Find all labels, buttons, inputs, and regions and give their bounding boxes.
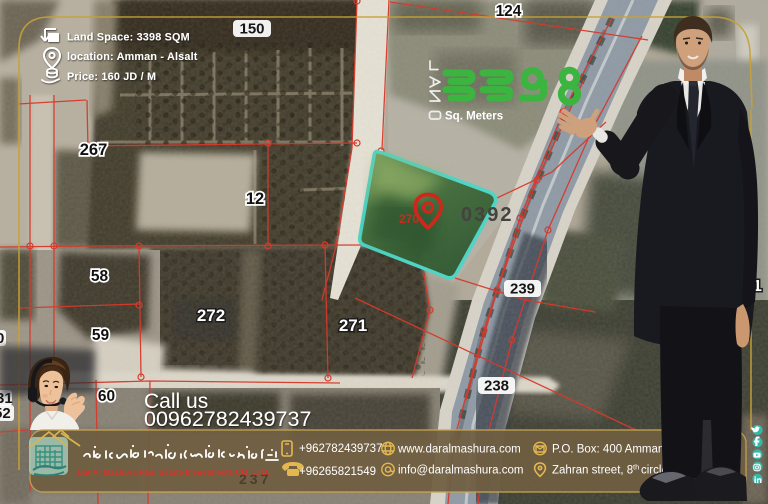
svg-text:location: Amman - Alsalt: location: Amman - Alsalt: [67, 51, 198, 63]
svg-text:Sq. Meters: Sq. Meters: [445, 111, 503, 123]
svg-text:0: 0: [0, 330, 4, 347]
svg-text:272: 272: [197, 306, 225, 325]
svg-text:124: 124: [496, 3, 522, 20]
svg-text:239: 239: [510, 281, 535, 298]
svg-text:59: 59: [92, 327, 110, 344]
svg-text:th: th: [633, 463, 639, 472]
svg-text:60: 60: [98, 388, 115, 405]
svg-text:info@daralmashura.com: info@daralmashura.com: [398, 465, 523, 477]
svg-text:12: 12: [246, 190, 264, 208]
svg-text:270: 270: [399, 212, 419, 226]
svg-text:00962782439737: 00962782439737: [144, 407, 311, 431]
svg-text:58: 58: [91, 268, 109, 285]
svg-text:Land Space: 3398 SQM: Land Space: 3398 SQM: [67, 32, 190, 44]
svg-text:271: 271: [339, 316, 367, 335]
svg-text:Dar Al Mashura Real Estate Inv: Dar Al Mashura Real Estate Investments C…: [77, 468, 270, 477]
svg-text:267: 267: [80, 141, 108, 159]
svg-text:www.daralmashura.com: www.daralmashura.com: [397, 444, 521, 456]
svg-text:238: 238: [484, 378, 509, 395]
svg-text:+96265821549: +96265821549: [299, 466, 376, 478]
svg-text:150: 150: [239, 21, 264, 38]
svg-text:52: 52: [0, 405, 11, 422]
svg-text:0392: 0392: [461, 204, 514, 226]
svg-text:Price: 160 JD / M: Price: 160 JD / M: [67, 71, 156, 83]
svg-text:Zahran street, 8: Zahran street, 8: [552, 465, 633, 477]
svg-text:+962782439737: +962782439737: [299, 443, 382, 455]
